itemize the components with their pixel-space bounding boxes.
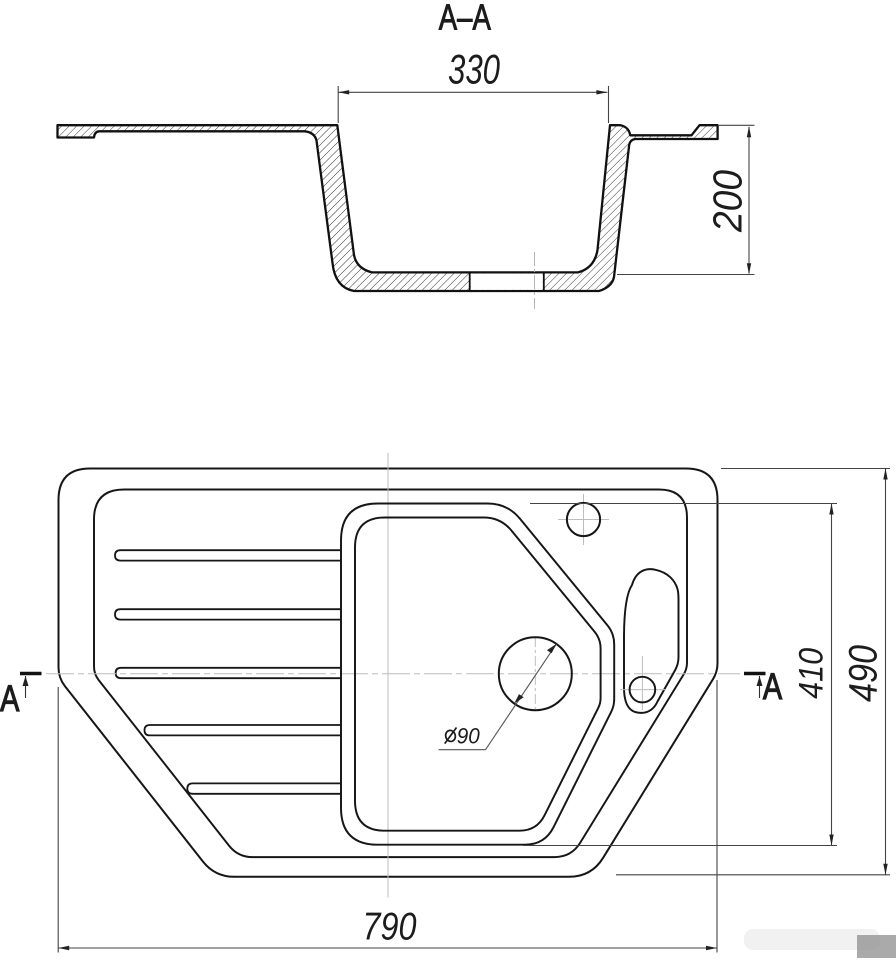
svg-text:A–A: A–A [439,0,491,38]
svg-text:A: A [763,667,783,708]
svg-text:330: 330 [448,46,500,93]
svg-text:410: 410 [793,648,831,699]
svg-text:200: 200 [705,170,751,233]
svg-text:490: 490 [842,645,886,702]
svg-text:90: 90 [457,724,480,749]
svg-text:790: 790 [363,906,417,949]
svg-text:A: A [0,679,20,720]
